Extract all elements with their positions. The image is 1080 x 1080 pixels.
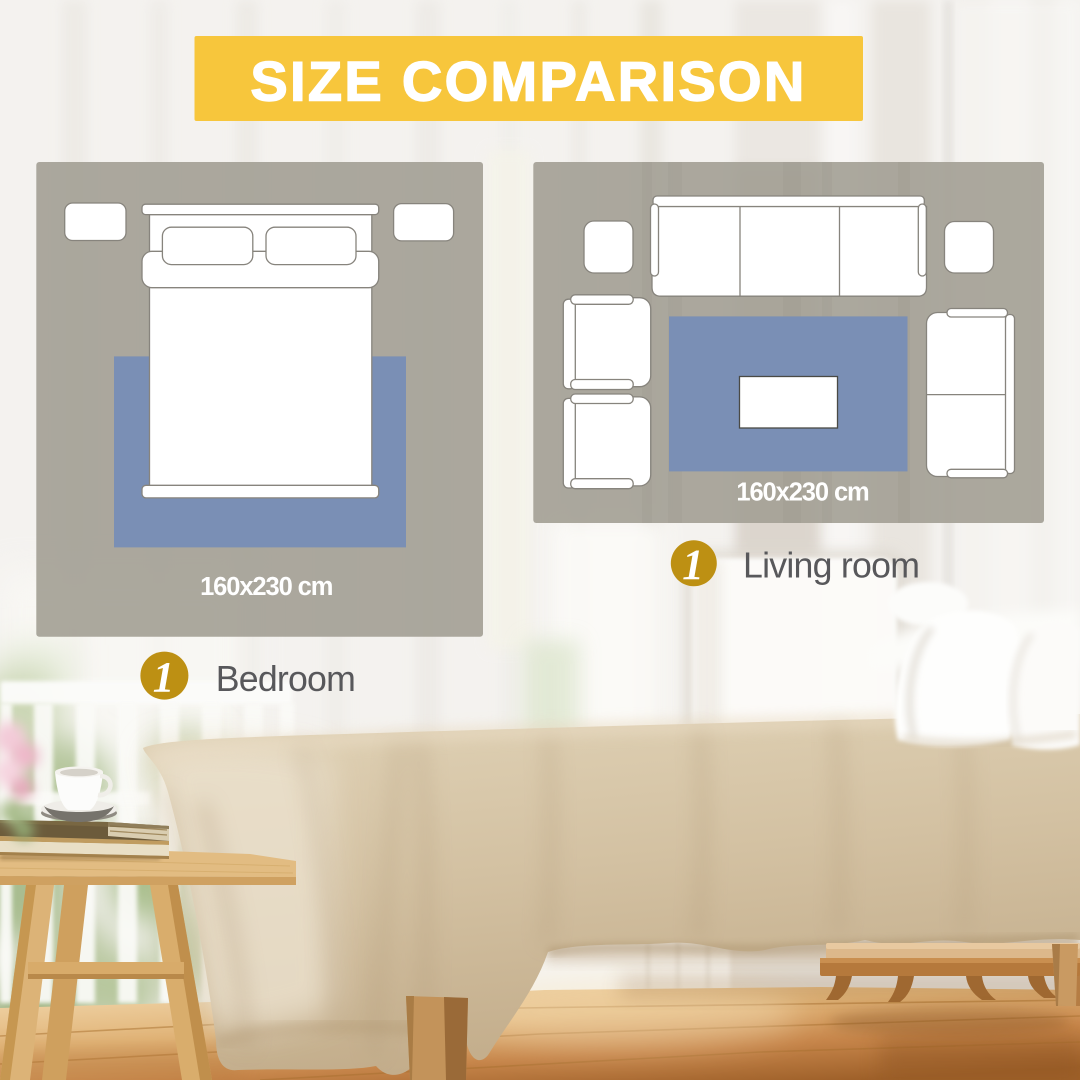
- svg-text:160x230 cm: 160x230 cm: [736, 479, 869, 507]
- svg-text:1: 1: [682, 542, 704, 589]
- svg-text:160x230 cm: 160x230 cm: [200, 573, 333, 601]
- svg-text:Living room: Living room: [743, 545, 919, 585]
- svg-text:Bedroom: Bedroom: [216, 659, 355, 699]
- svg-text:SIZE COMPARISON: SIZE COMPARISON: [250, 50, 806, 113]
- svg-text:1: 1: [153, 655, 175, 702]
